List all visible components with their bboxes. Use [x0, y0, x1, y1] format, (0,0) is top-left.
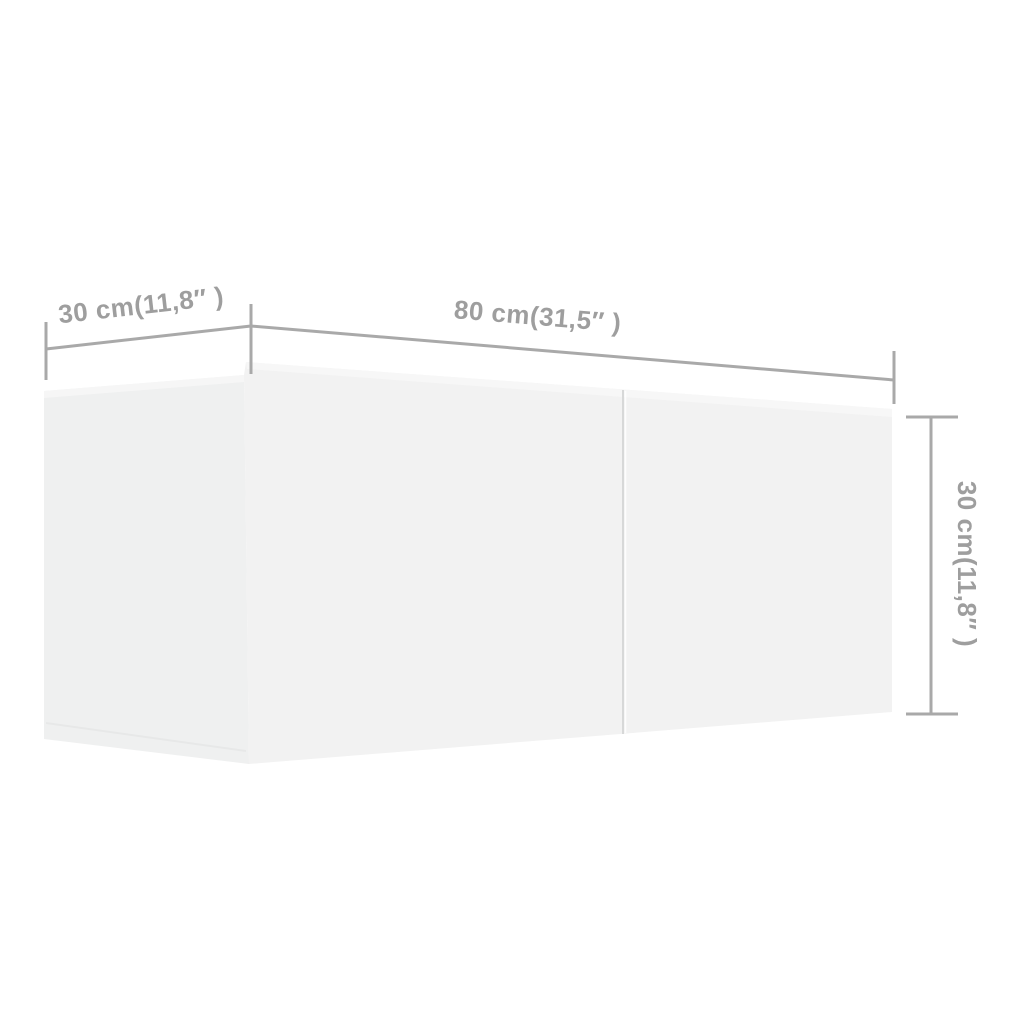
dimension-diagram-page: 30 cm(11,8″ ) 80 cm(31,5″ ) 30 cm(11,8″ …	[0, 0, 1024, 1024]
cabinet-front-face	[244, 362, 892, 764]
height-dimension-label: 30 cm(11,8″ )	[952, 481, 982, 647]
cabinet-side-face	[44, 375, 249, 764]
dimension-diagram: 30 cm(11,8″ ) 80 cm(31,5″ ) 30 cm(11,8″ …	[0, 0, 1024, 1024]
depth-dimension: 30 cm(11,8″ )	[46, 281, 251, 380]
cabinet	[44, 362, 892, 764]
depth-dimension-line	[46, 326, 251, 349]
width-dimension-label: 80 cm(31,5″ )	[453, 294, 623, 338]
height-dimension: 30 cm(11,8″ )	[906, 417, 982, 714]
depth-dimension-label: 30 cm(11,8″ )	[57, 281, 226, 330]
